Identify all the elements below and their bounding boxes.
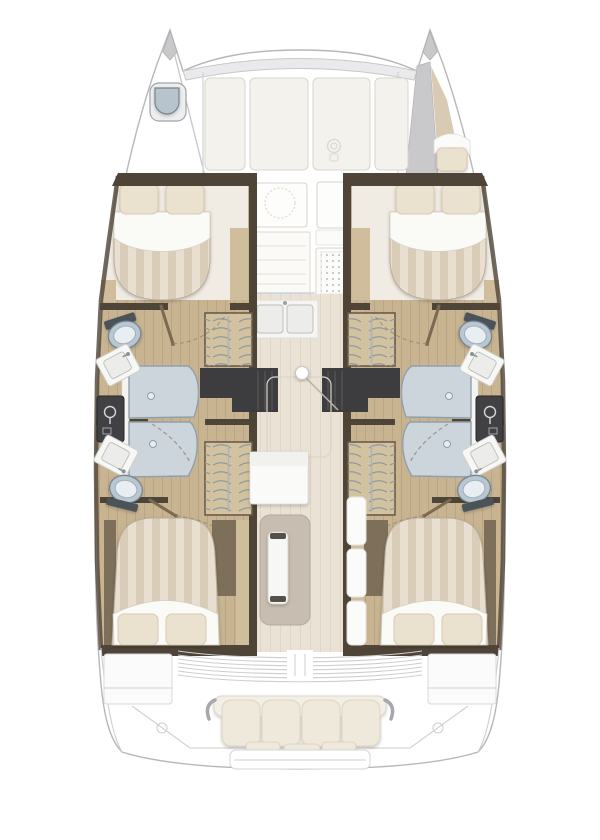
berth-cushion <box>437 148 467 171</box>
port-hull-interior <box>93 173 278 656</box>
coachroof-panels <box>203 72 408 178</box>
side-locker-port <box>104 654 172 704</box>
drawer-stack <box>253 232 315 299</box>
port-bow-deck-hatch <box>150 83 186 121</box>
mid-counter <box>250 452 308 504</box>
swim-platform <box>230 750 370 769</box>
floor-plan-svg <box>0 0 600 840</box>
hatch-center-gap <box>287 650 313 680</box>
bench-seat <box>214 696 386 753</box>
salon-side-cushions <box>347 497 366 645</box>
mast-post <box>296 367 309 380</box>
side-locker-starboard <box>428 654 496 704</box>
galley-counter-forward <box>255 183 307 227</box>
dining-table <box>260 515 310 625</box>
catamaran-floor-plan <box>0 0 600 840</box>
table-leaf <box>268 532 288 604</box>
double-sink <box>253 300 318 338</box>
